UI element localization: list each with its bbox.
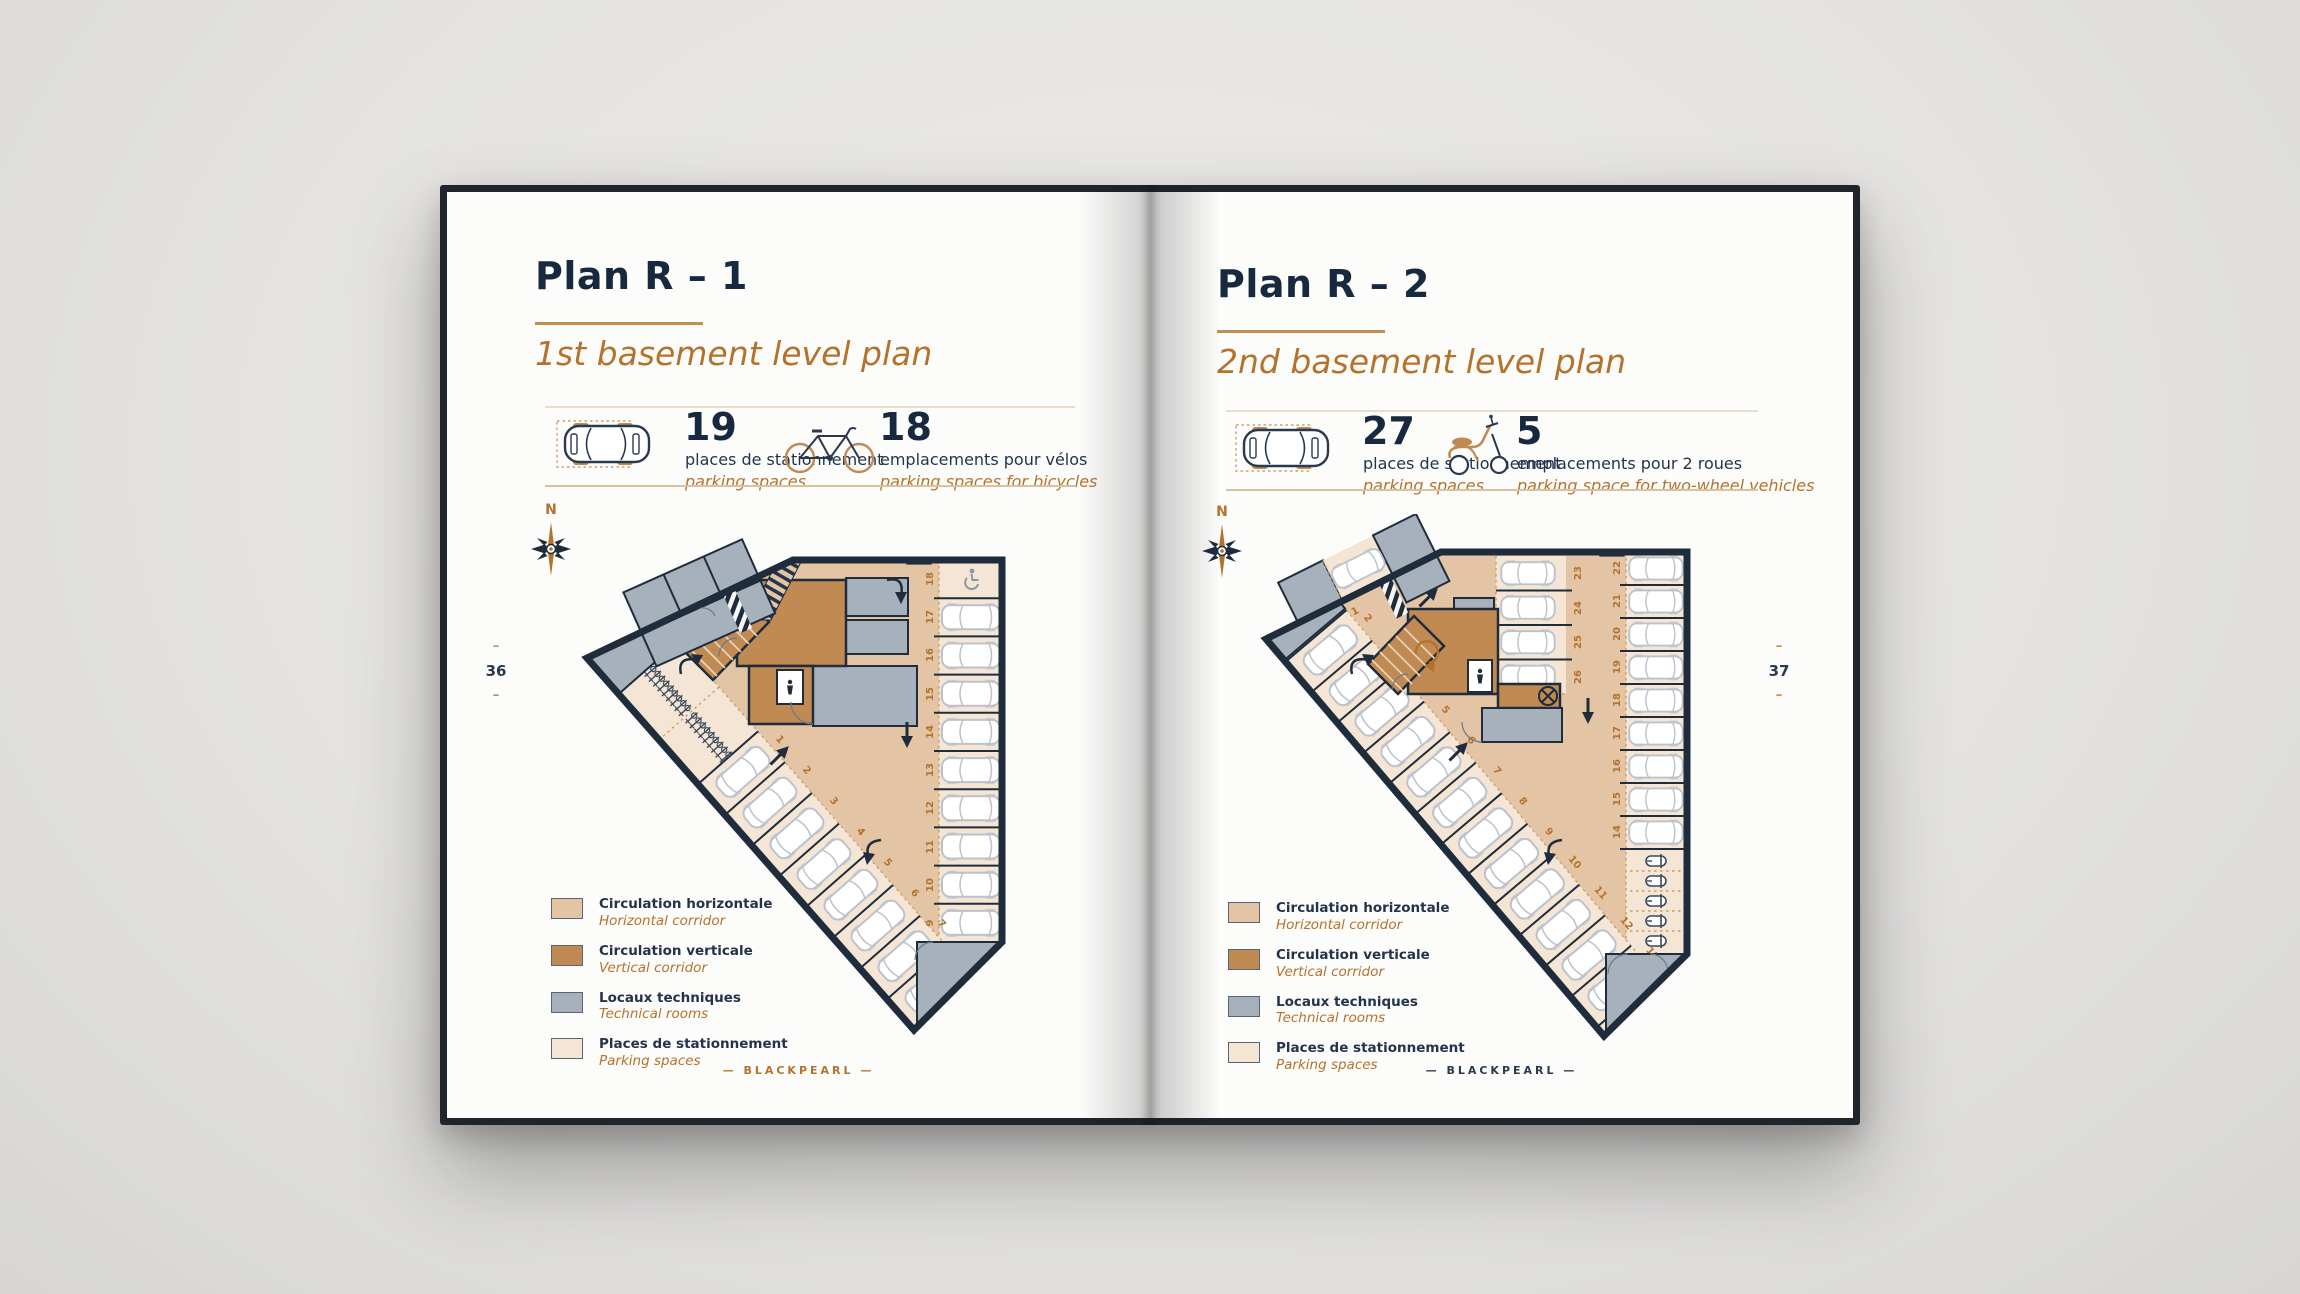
legend-label-fr: Locaux techniques [599, 990, 741, 1007]
compass-rose-icon [529, 520, 573, 578]
stats-rule-bottom [545, 485, 1075, 487]
legend-item: Circulation horizontale Horizontal corri… [1228, 900, 1528, 934]
legend-label-fr: Places de stationnement [599, 1036, 788, 1053]
stall-number: 10 [925, 878, 936, 892]
page-number-block: – 37 – [1764, 640, 1794, 702]
stall-number: 17 [1612, 726, 1623, 740]
compass-north-label: N [527, 502, 575, 518]
page-marker: – [481, 640, 511, 653]
page-marker: – [1764, 640, 1794, 653]
legend-item: Circulation horizontale Horizontal corri… [551, 896, 851, 930]
legend-label-fr: Places de stationnement [1276, 1040, 1465, 1057]
scooter-icon [1444, 414, 1514, 478]
stall-number: 25 [1573, 635, 1584, 649]
stall-number: 16 [1612, 759, 1623, 773]
legend-swatch-vertical-circulation [551, 945, 583, 966]
legend-item: Circulation verticale Vertical corridor [551, 943, 851, 977]
legend-label-fr: Circulation verticale [1276, 947, 1430, 964]
page-number-block: – 36 – [481, 640, 511, 702]
stall-number: 12 [925, 801, 936, 815]
stall-number: 18 [925, 572, 936, 586]
page-marker: – [481, 689, 511, 702]
stall-number: 13 [925, 763, 936, 777]
legend-swatch-horizontal-circulation [1228, 902, 1260, 923]
stall-number: 23 [1573, 566, 1584, 580]
legend-swatch-horizontal-circulation [551, 898, 583, 919]
stat-bike-count: 18 [879, 408, 932, 446]
stats-rule-bottom [1226, 489, 1758, 491]
title-underline [1217, 330, 1385, 333]
legend-swatch-parking-spaces [551, 1038, 583, 1059]
footer-brand: — BLACKPEARL — [447, 1064, 1150, 1077]
stats-rule-top [545, 406, 1075, 408]
bicycle-icon [783, 418, 877, 476]
compass: N [1198, 504, 1246, 584]
legend-label-fr: Circulation verticale [599, 943, 753, 960]
stall-number: 11 [925, 840, 936, 854]
page-subtitle-r1: 1st basement level plan [535, 334, 932, 373]
footer-brand: — BLACKPEARL — [1150, 1064, 1853, 1077]
compass-rose-icon [1200, 522, 1244, 580]
page-title-r1: Plan R – 1 [535, 254, 748, 298]
page-left: Plan R – 1 1st basement level plan 19 pl… [447, 192, 1150, 1118]
stall-number: 17 [925, 610, 936, 624]
legend-label-en: Horizontal corridor [599, 913, 772, 930]
legend-swatch-parking-spaces [1228, 1042, 1260, 1063]
stall-number: 24 [1573, 601, 1584, 615]
stall-number: 18 [1612, 693, 1623, 707]
stat-twowheel-label-fr: emplacements pour 2 roues [1517, 454, 1742, 473]
title-underline [535, 322, 703, 325]
legend-item: Locaux techniques Technical rooms [1228, 994, 1528, 1028]
page-right: Plan R – 2 2nd basement level plan 27 pl… [1150, 192, 1853, 1118]
stat-parking-count: 27 [1362, 412, 1415, 450]
stat-twowheel-label-en: parking space for two-wheel vehicles [1517, 476, 1814, 495]
page-subtitle-r2: 2nd basement level plan [1217, 342, 1626, 381]
legend-label-en: Technical rooms [1276, 1010, 1418, 1027]
stall-number: 16 [925, 648, 936, 662]
legend-label-fr: Circulation horizontale [1276, 900, 1449, 917]
legend: Circulation horizontale Horizontal corri… [551, 896, 851, 1083]
stats-rule-top [1226, 410, 1758, 412]
legend-swatch-technical-rooms [1228, 996, 1260, 1017]
compass: N [527, 502, 575, 582]
legend-label-en: Horizontal corridor [1276, 917, 1449, 934]
stat-bike-label-en: parking spaces for bicycles [880, 472, 1097, 491]
legend-label-en: Vertical corridor [1276, 964, 1430, 981]
stall-number: 14 [1612, 825, 1623, 839]
compass-north-label: N [1198, 504, 1246, 520]
legend-label-fr: Circulation horizontale [599, 896, 772, 913]
car-top-icon [1234, 420, 1338, 476]
legend-label-en: Vertical corridor [599, 960, 753, 977]
page-title-r2: Plan R – 2 [1217, 262, 1430, 306]
legend-item: Circulation verticale Vertical corridor [1228, 947, 1528, 981]
stall-number: 15 [925, 687, 936, 701]
legend-swatch-vertical-circulation [1228, 949, 1260, 970]
car-top-icon [555, 416, 659, 472]
stall-number: 15 [1612, 792, 1623, 806]
stall-number: 20 [1612, 627, 1623, 641]
stall-number: 22 [1612, 561, 1623, 575]
legend-label-fr: Locaux techniques [1276, 994, 1418, 1011]
stall-number: 21 [1612, 594, 1623, 608]
open-brochure: Plan R – 1 1st basement level plan 19 pl… [440, 185, 1860, 1125]
legend-swatch-technical-rooms [551, 992, 583, 1013]
stall-number: 26 [1573, 670, 1584, 684]
legend-label-en: Technical rooms [599, 1006, 741, 1023]
stall-number: 14 [925, 725, 936, 739]
page-number: 37 [1764, 662, 1794, 680]
stat-parking-count: 19 [684, 408, 737, 446]
stat-bike-label-fr: emplacements pour vélos [880, 450, 1087, 469]
legend-item: Locaux techniques Technical rooms [551, 990, 851, 1024]
stall-number: 19 [1612, 660, 1623, 674]
stat-parking-label-en: parking spaces [1363, 476, 1484, 495]
page-marker: – [1764, 689, 1794, 702]
stat-twowheel-count: 5 [1516, 412, 1542, 450]
legend: Circulation horizontale Horizontal corri… [1228, 900, 1528, 1087]
stall-number: 9 [925, 919, 936, 926]
page-number: 36 [481, 662, 511, 680]
